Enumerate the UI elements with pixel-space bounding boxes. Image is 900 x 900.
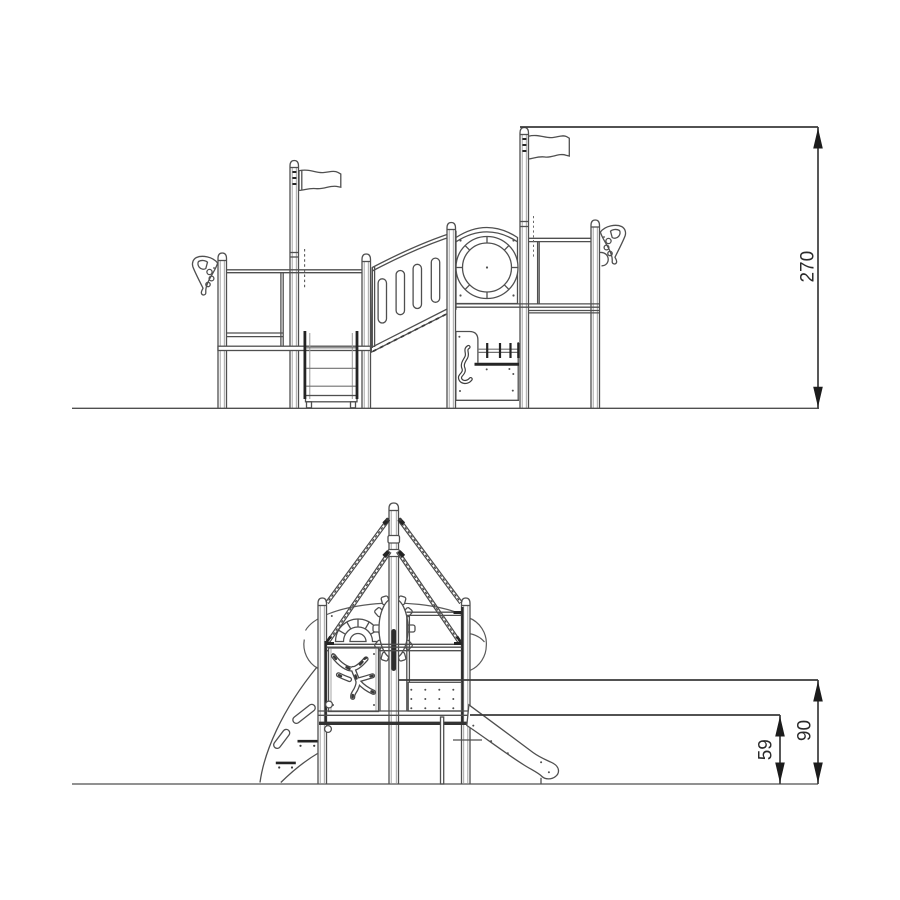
svg-text:59: 59 (756, 739, 777, 760)
svg-text:90: 90 (795, 720, 816, 741)
svg-text:270: 270 (798, 251, 819, 283)
